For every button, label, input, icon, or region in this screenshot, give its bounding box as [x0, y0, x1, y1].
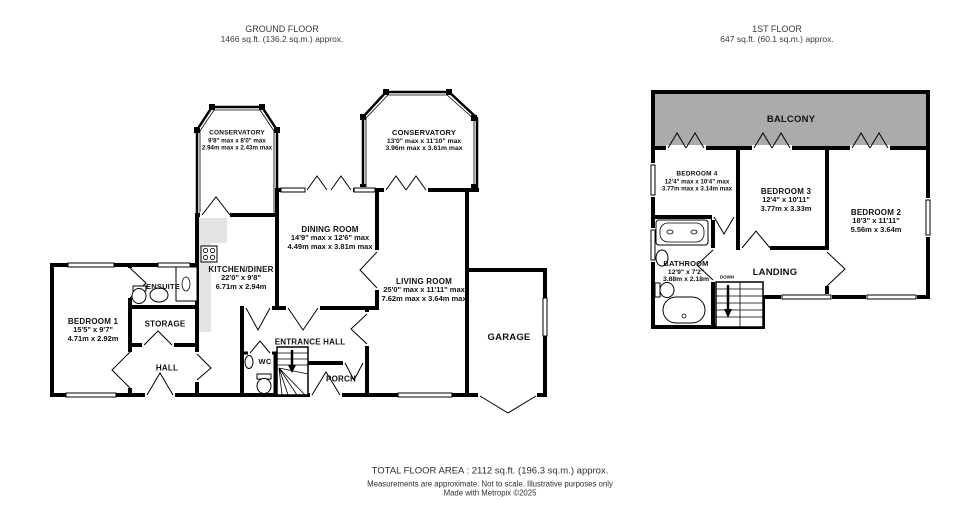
- room-label-wc: WC: [259, 358, 272, 367]
- room-label-bedroom4: BEDROOM 4 12'4" max x 10'4" max 3.77m ma…: [662, 170, 732, 192]
- room-label-storage: STORAGE: [145, 320, 186, 329]
- room-label-kitchen: KITCHEN/DINER 22'0" x 9'8" 6.71m x 2.94m: [208, 265, 273, 291]
- oval-bathtub-icon: [663, 297, 705, 323]
- stove-icon: [201, 246, 217, 262]
- first-floor-subtitle: 647 sq.ft. (60.1 sq.m.) approx.: [720, 34, 833, 44]
- room-label-bedroom2: BEDROOM 2 18'3" x 11'11" 5.56m x 3.64m: [851, 208, 902, 234]
- stairs-down-label: DOWN: [720, 275, 734, 280]
- room-label-landing: LANDING: [753, 268, 798, 278]
- ground-floor-title: GROUND FLOOR: [245, 24, 319, 34]
- staircase-first-icon: [716, 282, 763, 327]
- sink-icon: [245, 356, 253, 369]
- room-label-hall: HALL: [156, 364, 178, 373]
- floorplan-drawing: [0, 0, 980, 526]
- room-label-living: LIVING ROOM 25'0" max x 11'11" max 7.62m…: [381, 277, 466, 303]
- room-label-bedroom3: BEDROOM 3 12'4" x 10'11" 3.77m x 3.33m: [761, 187, 812, 213]
- toilet-icon: [655, 283, 674, 298]
- room-label-dining: DINING ROOM 14'9" max x 12'6" max 4.49m …: [287, 225, 372, 251]
- credit-line: Made with Metropix ©2025: [444, 489, 537, 498]
- room-label-bathroom: BATHROOM 12'9" x 7'2" 3.88m x 2.18m: [663, 260, 709, 284]
- disclaimer-line: Measurements are approximate. Not to sca…: [367, 480, 613, 489]
- room-label-ensuite: ENSUITE: [146, 283, 180, 292]
- floorplan-page: GROUND FLOOR 1466 sq.ft. (136.2 sq.m.) a…: [0, 0, 980, 526]
- room-label-balcony: BALCONY: [767, 115, 815, 125]
- total-floor-area: TOTAL FLOOR AREA : 2112 sq.ft. (196.3 sq…: [372, 466, 609, 477]
- room-label-conservatory-small: CONSERVATORY 9'8" max x 8'0" max 2.94m m…: [202, 129, 272, 151]
- ground-floor-plan: [52, 89, 548, 413]
- room-label-conservatory-large: CONSERVATORY 13'0" max x 11'10" max 3.96…: [385, 129, 462, 153]
- room-label-bedroom1: BEDROOM 1 15'5" x 9'7" 4.71m x 2.92m: [68, 317, 119, 343]
- staircase-ground-icon: [277, 347, 308, 395]
- first-floor-title: 1ST FLOOR: [752, 24, 802, 34]
- room-label-porch: PORCH: [326, 375, 356, 384]
- room-label-garage: GARAGE: [488, 333, 531, 343]
- ground-floor-subtitle: 1466 sq.ft. (136.2 sq.m.) approx.: [221, 34, 344, 44]
- room-label-entrance-hall: ENTRANCE HALL: [275, 338, 346, 347]
- bathtub-icon: [656, 220, 708, 245]
- conservatory-small-outline: [194, 104, 280, 215]
